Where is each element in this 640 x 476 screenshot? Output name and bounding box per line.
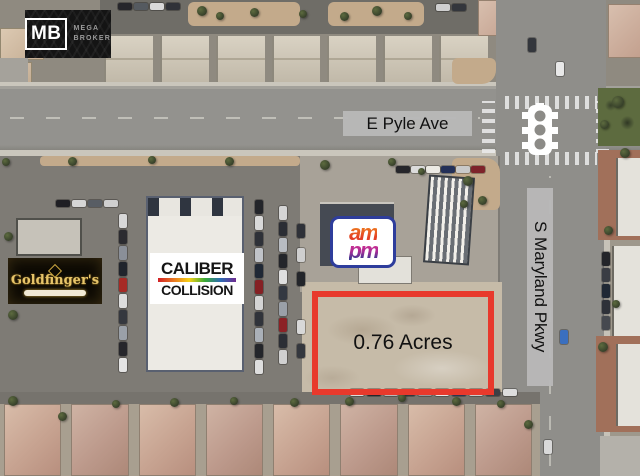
house-roof xyxy=(340,404,397,476)
house-roof xyxy=(408,404,465,476)
caliber-line1: CALIBER xyxy=(161,260,233,277)
car xyxy=(279,270,287,284)
house-row-north xyxy=(104,36,488,86)
car xyxy=(279,238,287,252)
car xyxy=(456,166,470,173)
tree-icon xyxy=(404,12,412,20)
house-roof xyxy=(139,404,196,476)
tree-icon xyxy=(604,226,613,235)
car xyxy=(279,222,287,236)
car xyxy=(602,316,610,330)
car xyxy=(119,262,127,276)
car xyxy=(503,389,517,396)
house-roof xyxy=(272,36,321,86)
tree-icon xyxy=(197,6,207,16)
tree-icon xyxy=(452,397,461,406)
tree-icon xyxy=(600,120,609,129)
house-roof xyxy=(206,404,263,476)
car xyxy=(255,264,263,278)
tree-icon xyxy=(463,176,473,186)
tree-icon xyxy=(478,196,487,205)
tree-icon xyxy=(497,400,505,408)
car xyxy=(436,4,450,11)
tree-icon xyxy=(345,397,354,406)
car xyxy=(255,312,263,326)
house-roof xyxy=(71,404,128,476)
car xyxy=(255,232,263,246)
building-east xyxy=(616,158,640,236)
house-roof xyxy=(327,36,376,86)
tree-icon xyxy=(58,412,67,421)
tree-icon xyxy=(8,310,18,320)
tree-icon xyxy=(524,420,533,429)
driveway-east xyxy=(600,436,640,476)
car xyxy=(279,334,287,348)
car xyxy=(118,3,132,10)
tree-icon xyxy=(8,396,18,406)
car xyxy=(134,3,148,10)
tree-icon xyxy=(299,10,307,18)
car xyxy=(602,268,610,282)
car xyxy=(166,3,180,10)
car xyxy=(556,62,564,76)
car xyxy=(255,296,263,310)
car xyxy=(471,166,485,173)
car xyxy=(452,4,466,11)
mega-broker-monogram: MB xyxy=(25,18,67,50)
tree-icon xyxy=(418,168,425,175)
aerial-property-map: MB MEGA BROKER E Pyle Ave S Maryland Pkw… xyxy=(0,0,640,476)
car xyxy=(72,200,86,207)
car xyxy=(297,224,305,238)
tree-icon xyxy=(2,158,10,166)
traffic-light-icon xyxy=(521,103,559,157)
car xyxy=(255,360,263,374)
building-east xyxy=(616,344,640,426)
car xyxy=(297,248,305,262)
goldfingers-bar xyxy=(24,290,86,296)
car xyxy=(297,272,305,286)
house-roof xyxy=(104,36,153,86)
street-label-s-maryland: S Maryland Pkwy xyxy=(527,188,553,386)
tree-icon xyxy=(170,398,179,407)
tree-icon xyxy=(112,400,120,408)
tree-icon xyxy=(320,160,330,170)
tree-icon xyxy=(68,157,77,166)
caliber-rainbow-bar xyxy=(158,278,236,282)
corner-landscape xyxy=(452,58,496,84)
car xyxy=(255,200,263,214)
car xyxy=(602,300,610,314)
tree-icon xyxy=(460,200,468,208)
house-roof xyxy=(216,36,265,86)
car xyxy=(441,166,455,173)
car xyxy=(279,350,287,364)
car xyxy=(560,330,568,344)
ampm-logo: am pm xyxy=(330,216,396,268)
car xyxy=(255,216,263,230)
goldfingers-logo: Goldfinger's xyxy=(8,258,102,304)
tree-icon xyxy=(290,398,299,407)
planter-strip xyxy=(40,156,300,166)
car xyxy=(119,214,127,228)
billboard-structure xyxy=(423,175,475,266)
building-east xyxy=(612,246,640,336)
car xyxy=(602,252,610,266)
tree-icon xyxy=(612,96,624,108)
ampm-pm-text: pm xyxy=(349,242,378,260)
house-roof xyxy=(475,404,532,476)
car xyxy=(279,206,287,220)
house-row-south xyxy=(0,404,536,476)
car xyxy=(119,326,127,340)
caliber-line2: COLLISION xyxy=(161,283,233,297)
tree-icon xyxy=(620,148,630,158)
car xyxy=(602,284,610,298)
car xyxy=(279,318,287,332)
tree-icon xyxy=(4,232,13,241)
car xyxy=(255,248,263,262)
car xyxy=(297,344,305,358)
tree-icon xyxy=(598,342,608,352)
tree-icon xyxy=(372,6,382,16)
tree-icon xyxy=(340,12,349,21)
car xyxy=(104,200,118,207)
tree-icon xyxy=(388,158,396,166)
car xyxy=(119,342,127,356)
car xyxy=(119,358,127,372)
car xyxy=(255,344,263,358)
house-roof xyxy=(273,404,330,476)
car xyxy=(297,320,305,334)
car xyxy=(119,310,127,324)
mega-broker-name: MEGA BROKER xyxy=(73,24,111,45)
house-roof xyxy=(4,404,61,476)
car xyxy=(279,302,287,316)
car xyxy=(396,166,410,173)
parcel-area-label: 0.76 Acres xyxy=(353,331,452,355)
car xyxy=(255,280,263,294)
car xyxy=(426,166,440,173)
house-roof xyxy=(608,4,640,58)
tree-icon xyxy=(398,394,406,402)
parcel-outline: 0.76 Acres xyxy=(312,291,494,395)
goldfingers-building xyxy=(16,218,82,256)
tree-icon xyxy=(225,157,234,166)
tree-icon xyxy=(612,300,620,308)
car xyxy=(119,230,127,244)
street-label-e-pyle: E Pyle Ave xyxy=(343,111,472,136)
car xyxy=(544,440,552,454)
tree-icon xyxy=(250,8,259,17)
car xyxy=(279,286,287,300)
car xyxy=(150,3,164,10)
car xyxy=(119,246,127,260)
car xyxy=(88,200,102,207)
mega-broker-logo: MB MEGA BROKER xyxy=(25,10,111,58)
car xyxy=(56,200,70,207)
crosswalk-west xyxy=(482,101,495,153)
car xyxy=(255,328,263,342)
car xyxy=(279,254,287,268)
tree-icon xyxy=(230,397,238,405)
house-roof xyxy=(383,36,432,86)
tree-icon xyxy=(216,12,224,20)
house-roof xyxy=(160,36,209,86)
car xyxy=(119,278,127,292)
caliber-collision-logo: CALIBER COLLISION xyxy=(150,253,244,304)
car xyxy=(119,294,127,308)
car xyxy=(528,38,536,52)
tree-icon xyxy=(148,156,156,164)
